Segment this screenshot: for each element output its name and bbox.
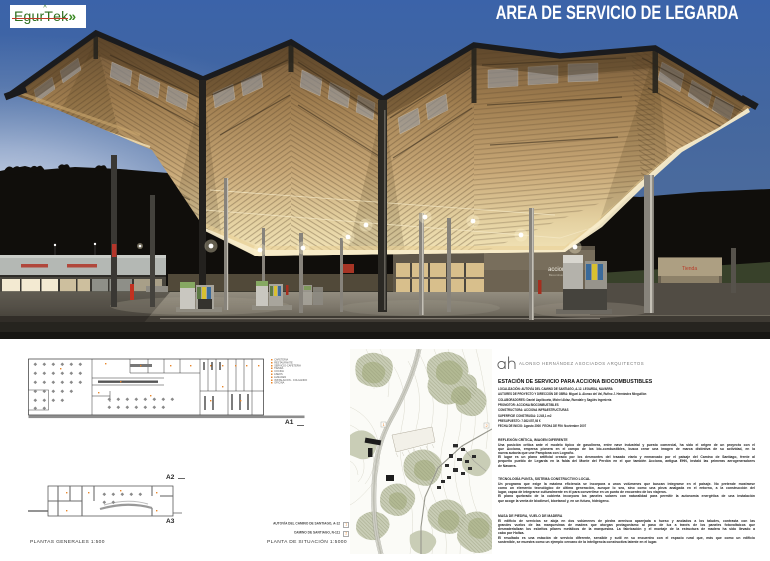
svg-text:Tienda: Tienda (682, 266, 697, 272)
